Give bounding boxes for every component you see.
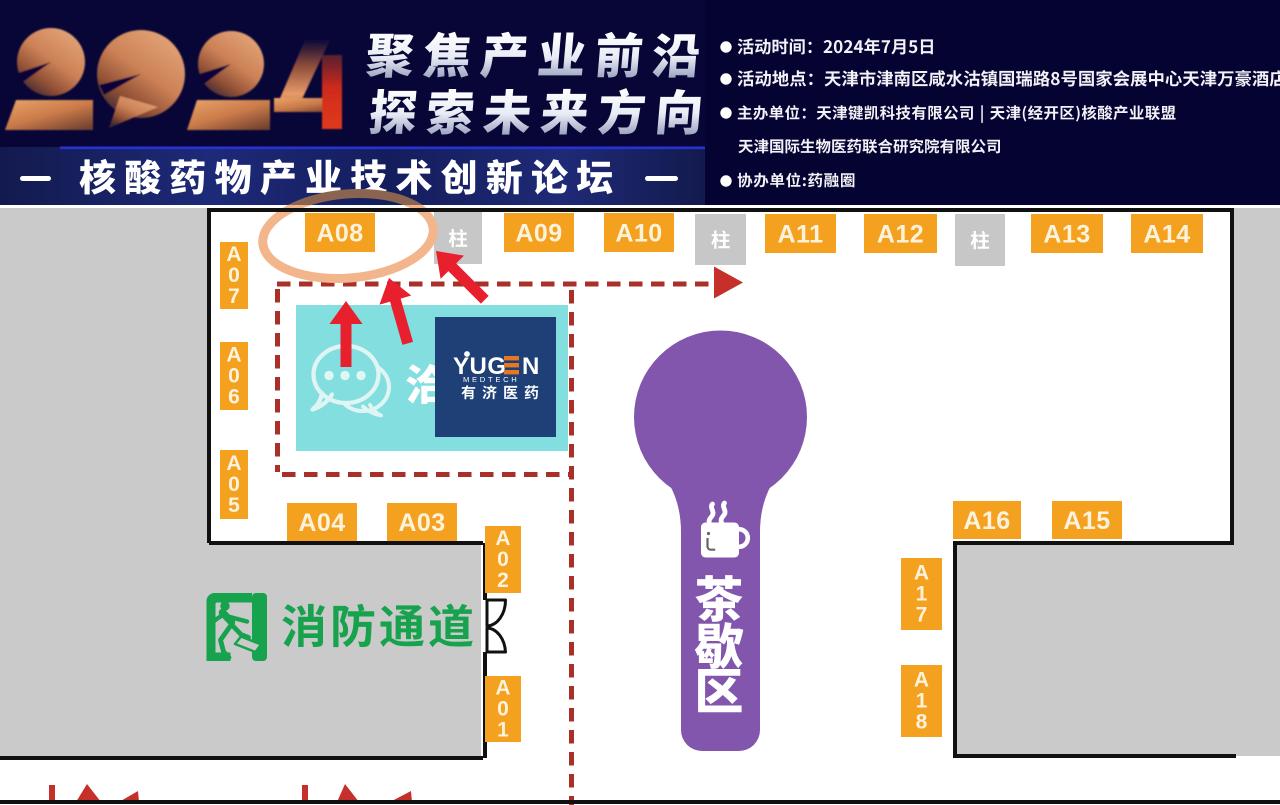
svg-text:7: 7	[916, 604, 928, 627]
svg-text:A03: A03	[398, 509, 445, 537]
svg-text:1: 1	[916, 690, 928, 713]
svg-text:A15: A15	[1063, 507, 1110, 535]
svg-text:A: A	[495, 677, 510, 700]
svg-text:1: 1	[916, 583, 928, 606]
svg-text:5: 5	[228, 494, 240, 517]
svg-text:A08: A08	[316, 219, 363, 247]
svg-text:7: 7	[228, 285, 240, 308]
svg-text:1: 1	[497, 719, 509, 742]
svg-text:A: A	[914, 669, 929, 692]
svg-text:A10: A10	[615, 219, 662, 247]
svg-text:0: 0	[497, 698, 509, 721]
svg-text:A11: A11	[778, 220, 824, 248]
svg-text:6: 6	[228, 386, 240, 409]
svg-text:0: 0	[497, 548, 509, 571]
svg-text:0: 0	[228, 365, 240, 388]
svg-text:A: A	[914, 562, 929, 585]
svg-text:A: A	[226, 243, 241, 266]
svg-text:8: 8	[916, 711, 928, 734]
svg-text:A16: A16	[963, 507, 1010, 535]
svg-text:A12: A12	[877, 220, 924, 248]
svg-text:N: N	[522, 353, 539, 380]
svg-text:A13: A13	[1043, 220, 1090, 248]
svg-text:0: 0	[228, 264, 240, 287]
svg-text:A: A	[226, 344, 241, 367]
svg-text:A: A	[226, 452, 241, 475]
svg-text:A: A	[495, 527, 510, 550]
svg-text:A14: A14	[1143, 220, 1190, 248]
svg-text:A09: A09	[515, 219, 562, 247]
svg-text:MEDTECH: MEDTECH	[463, 375, 519, 384]
svg-text:2: 2	[497, 569, 509, 592]
svg-text:A04: A04	[298, 509, 345, 537]
svg-text:0: 0	[228, 473, 240, 496]
